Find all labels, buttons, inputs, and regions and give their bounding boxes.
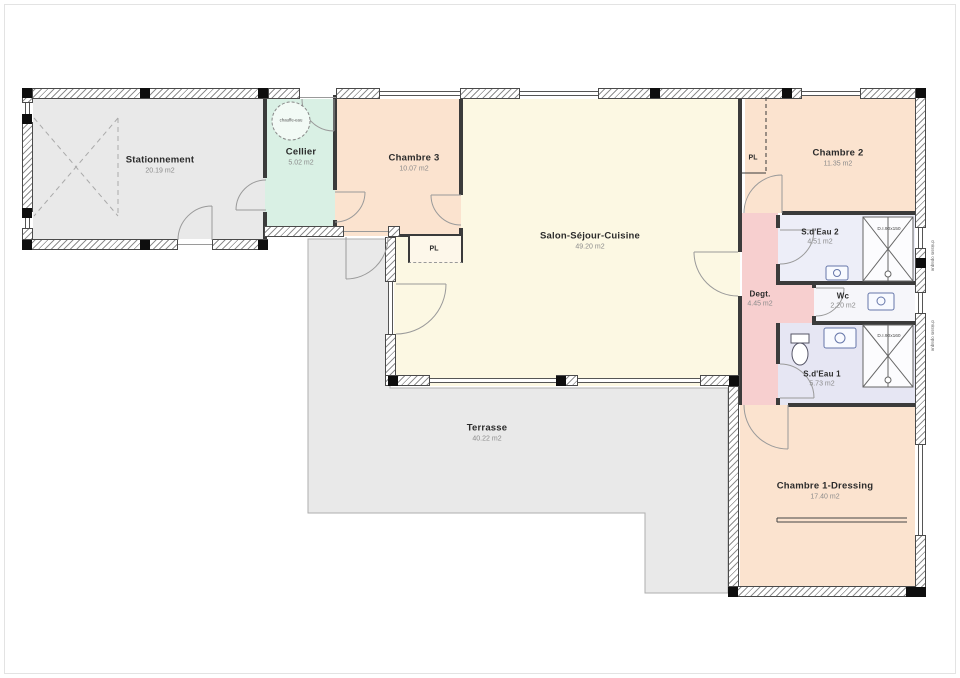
door-threshold xyxy=(178,244,212,245)
label-stationnement: Stationnement 20.19 m2 xyxy=(126,154,195,175)
exterior-wall xyxy=(460,88,520,99)
interior-wall xyxy=(782,211,915,215)
room-name: Wc xyxy=(830,291,855,301)
room-area: 5.73 m2 xyxy=(803,380,841,389)
room-area: 10.07 m2 xyxy=(389,165,440,174)
interior-wall xyxy=(459,99,463,195)
room-name: Degt. xyxy=(747,289,772,299)
window xyxy=(802,91,860,96)
wall-post xyxy=(388,376,398,386)
interior-wall xyxy=(263,95,267,178)
room-name: Terrasse xyxy=(467,422,508,434)
exterior-wall xyxy=(22,122,33,212)
exterior-wall xyxy=(22,239,178,250)
window xyxy=(520,91,598,96)
label-degagement: Degt. 4.45 m2 xyxy=(747,289,772,308)
room-area: 17.40 m2 xyxy=(777,493,874,502)
exterior-wall xyxy=(598,88,802,99)
room-wc xyxy=(814,283,915,323)
window xyxy=(918,293,923,313)
floor-plan: Stationnement 20.19 m2 Cellier 5.02 m2 C… xyxy=(0,0,960,678)
label-chambre3: Chambre 3 10.07 m2 xyxy=(389,152,440,173)
door-threshold xyxy=(300,97,336,98)
label-shower-top: D.I.90x150 xyxy=(877,227,900,233)
room-name: Stationnement xyxy=(126,154,195,166)
exterior-wall xyxy=(336,88,380,99)
room-name: Chambre 3 xyxy=(389,152,440,164)
label-closet-chambre3: PL xyxy=(430,244,439,253)
wall-post xyxy=(22,208,32,218)
interior-wall xyxy=(788,403,915,407)
label-wc: Wc 2.20 m2 xyxy=(830,291,855,310)
interior-wall xyxy=(776,398,780,405)
wall-post xyxy=(22,114,32,124)
exterior-wall xyxy=(915,88,926,228)
interior-wall xyxy=(812,283,816,288)
wall-post xyxy=(916,88,926,98)
label-window-note-top: châssis opaque xyxy=(930,240,935,271)
door-threshold xyxy=(344,231,388,232)
wall-post xyxy=(728,587,738,597)
wall-post xyxy=(906,587,916,597)
room-sdeau2 xyxy=(778,215,915,283)
label-cellier: Cellier 5.02 m2 xyxy=(286,146,316,167)
wall-post xyxy=(650,88,660,98)
window xyxy=(380,91,460,96)
room-name: Salon-Séjour-Cuisine xyxy=(540,230,640,242)
exterior-wall xyxy=(264,226,344,237)
exterior-wall xyxy=(268,88,300,99)
label-chambre1: Chambre 1-Dressing 17.40 m2 xyxy=(777,480,874,501)
window xyxy=(918,228,923,248)
interior-wall xyxy=(812,321,915,325)
window xyxy=(430,378,556,383)
room-area: 4.51 m2 xyxy=(801,238,839,247)
wall-post xyxy=(140,88,150,98)
interior-wall xyxy=(333,95,337,190)
room-area: 2.20 m2 xyxy=(830,302,855,311)
interior-wall xyxy=(776,323,780,364)
label-chambre2: Chambre 2 11.35 m2 xyxy=(813,147,864,168)
wall-post xyxy=(258,88,268,98)
room-area: 20.19 m2 xyxy=(126,167,195,176)
wall-post xyxy=(782,88,792,98)
label-water-heater: chauffe-eau xyxy=(279,119,303,124)
room-area: 11.35 m2 xyxy=(813,160,864,169)
exterior-wall xyxy=(388,226,400,237)
room-name: Cellier xyxy=(286,146,316,158)
room-area: 40.22 m2 xyxy=(467,435,508,444)
interior-wall xyxy=(738,95,742,213)
interior-wall xyxy=(738,213,742,252)
room-name: Chambre 1-Dressing xyxy=(777,480,874,492)
wall-post xyxy=(22,240,32,250)
wall-post xyxy=(258,240,268,250)
label-shower-bottom: D.I.90x160 xyxy=(877,334,900,340)
window xyxy=(388,282,393,334)
exterior-wall xyxy=(915,313,926,445)
wall-post xyxy=(556,376,566,386)
room-area: 49.20 m2 xyxy=(540,243,640,252)
room-area: 5.02 m2 xyxy=(286,159,316,168)
exterior-wall xyxy=(385,237,396,282)
label-closet-chambre2: PL xyxy=(749,153,758,162)
interior-wall xyxy=(776,281,915,285)
room-name: S.d'Eau 2 xyxy=(801,227,839,237)
label-sdeau2: S.d'Eau 2 4.51 m2 xyxy=(801,227,839,246)
exterior-wall xyxy=(728,386,739,593)
wall-post xyxy=(916,587,926,597)
room-area: 4.45 m2 xyxy=(747,300,772,309)
label-sdeau1: S.d'Eau 1 5.73 m2 xyxy=(803,369,841,388)
wall-post xyxy=(22,88,32,98)
room-name: S.d'Eau 1 xyxy=(803,369,841,379)
room-name: Chambre 2 xyxy=(813,147,864,159)
exterior-wall xyxy=(728,586,926,597)
label-salon: Salon-Séjour-Cuisine 49.20 m2 xyxy=(540,230,640,251)
wall-post xyxy=(140,240,150,250)
window xyxy=(578,378,700,383)
label-terrasse: Terrasse 40.22 m2 xyxy=(467,422,508,443)
interior-wall xyxy=(776,215,780,228)
window xyxy=(918,445,923,535)
wall-post xyxy=(729,376,739,386)
label-window-note-bottom: châssis opaque xyxy=(930,320,935,351)
exterior-wall xyxy=(915,248,926,293)
wall-post xyxy=(916,258,926,268)
